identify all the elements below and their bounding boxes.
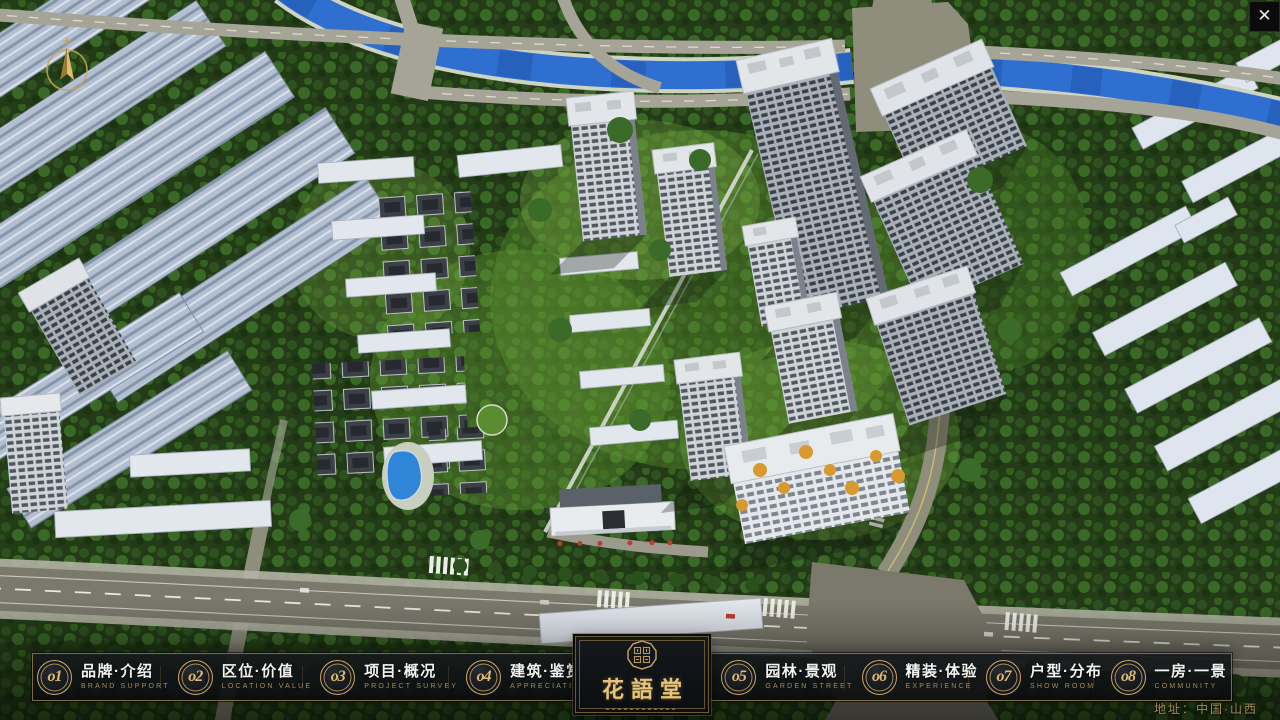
seal-icon [627, 640, 657, 670]
aerial-render [0, 0, 1280, 720]
nav-item-garden-landscape[interactable]: o5 园林·景观GARDEN STREET [717, 660, 857, 695]
nav-label-zh: 品牌·介绍 [81, 664, 170, 680]
nav-label-zh: 区位·价值 [222, 664, 312, 680]
nav-item-room-view[interactable]: o8 一房·一景COMMUNITY [1107, 660, 1232, 695]
nav-item-finishing-experience[interactable]: o6 精装·体验EXPERIENCE [858, 660, 983, 695]
logo-subtext-rule [606, 708, 678, 710]
nav-item-project-survey[interactable]: o3 项目·概况PROJECT SURVEY [316, 660, 462, 695]
logo-title: 花語堂 [595, 672, 689, 704]
nav-label-en: PROJECT SURVEY [364, 683, 458, 690]
nav-label-en: LOCATION VALUE [222, 683, 312, 690]
nav-item-floorplan-distribution[interactable]: o7 户型·分布SHOW ROOM [982, 660, 1107, 695]
logo-panel[interactable]: 花語堂 [575, 636, 709, 713]
nav-label-zh: 项目·概况 [364, 664, 458, 680]
nav-group-right: o5 园林·景观GARDEN STREET o6 精装·体验EXPERIENCE… [717, 654, 1231, 700]
nav-item-architecture[interactable]: o4 建筑·鉴赏APPRECIATION [462, 660, 592, 695]
number-badge-08: o8 [1111, 660, 1146, 695]
nav-label-en: BRAND SUPPORT [81, 683, 170, 690]
project-address: 地址：中国·山西 [1154, 700, 1258, 717]
close-button[interactable]: ✕ [1249, 1, 1280, 32]
nav-item-brand-intro[interactable]: o1 品牌·介绍BRAND SUPPORT [33, 660, 174, 695]
scene-viewport[interactable]: ✕ o1 品牌·介绍BRAND SUPPORT o2 区位·价值LOCATION… [0, 0, 1280, 720]
number-badge-03: o3 [320, 660, 355, 695]
number-badge-01: o1 [37, 660, 72, 695]
nav-item-location-value[interactable]: o2 区位·价值LOCATION VALUE [174, 660, 316, 695]
nav-label-zh: 园林·景观 [765, 664, 853, 680]
nav-label-en: COMMUNITY [1155, 683, 1228, 690]
nav-label-zh: 一房·一景 [1155, 664, 1228, 680]
number-badge-07: o7 [986, 660, 1021, 695]
number-badge-06: o6 [862, 660, 897, 695]
number-badge-05: o5 [721, 660, 756, 695]
nav-group-left: o1 品牌·介绍BRAND SUPPORT o2 区位·价值LOCATION V… [33, 654, 592, 700]
number-badge-04: o4 [466, 660, 501, 695]
nav-label-en: GARDEN STREET [765, 683, 853, 690]
number-badge-02: o2 [178, 660, 213, 695]
